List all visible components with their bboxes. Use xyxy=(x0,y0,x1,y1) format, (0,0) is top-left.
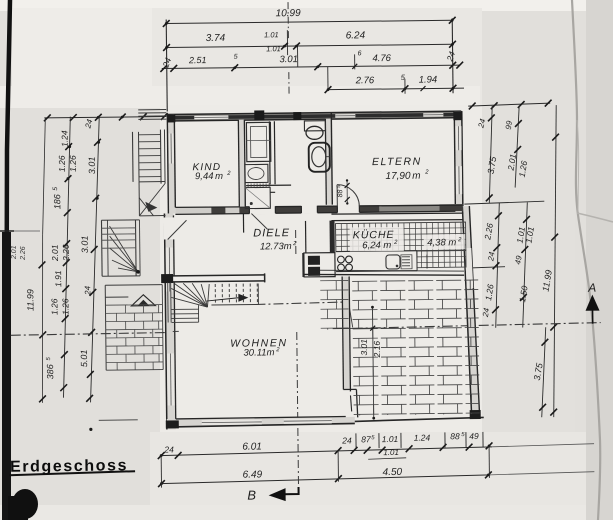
svg-text:30.11m: 30.11m xyxy=(243,347,274,358)
svg-text:5: 5 xyxy=(234,54,238,61)
svg-text:87: 87 xyxy=(361,434,371,444)
svg-text:186: 186 xyxy=(52,194,62,209)
svg-text:6: 6 xyxy=(358,50,362,57)
svg-text:2.26: 2.26 xyxy=(61,244,71,262)
svg-text:6.24: 6.24 xyxy=(346,30,366,41)
svg-text:4.76: 4.76 xyxy=(372,53,391,64)
svg-text:2.51: 2.51 xyxy=(188,55,207,65)
svg-text:6.49: 6.49 xyxy=(243,469,263,480)
svg-text:2: 2 xyxy=(275,347,280,353)
svg-text:B: B xyxy=(247,488,256,503)
svg-text:24: 24 xyxy=(83,285,92,296)
svg-text:49: 49 xyxy=(469,431,479,441)
svg-text:3.01: 3.01 xyxy=(279,54,298,65)
svg-text:2.01: 2.01 xyxy=(11,245,18,260)
svg-text:1.01: 1.01 xyxy=(266,44,281,53)
svg-text:1.26: 1.26 xyxy=(68,155,78,172)
svg-text:386: 386 xyxy=(45,364,55,379)
svg-text:24: 24 xyxy=(163,444,174,454)
svg-text:1.94: 1.94 xyxy=(419,74,438,85)
svg-text:1.26: 1.26 xyxy=(57,155,67,172)
svg-text:1.26: 1.26 xyxy=(60,298,70,315)
svg-text:2: 2 xyxy=(393,240,398,246)
svg-text:DIELE: DIELE xyxy=(253,227,290,239)
svg-text:4,38 m: 4,38 m xyxy=(427,237,456,248)
svg-text:ELTERN: ELTERN xyxy=(372,156,422,169)
svg-text:88: 88 xyxy=(337,189,344,197)
svg-text:9,44 m: 9,44 m xyxy=(195,171,223,182)
svg-text:12.73m: 12.73m xyxy=(260,241,292,252)
svg-text:11.99: 11.99 xyxy=(25,289,35,311)
svg-text:1.01: 1.01 xyxy=(383,448,399,457)
svg-text:17,90 m: 17,90 m xyxy=(385,171,420,182)
svg-text:24: 24 xyxy=(486,251,497,263)
svg-text:A: A xyxy=(587,281,596,295)
svg-text:3.01: 3.01 xyxy=(359,339,369,356)
svg-text:1.91: 1.91 xyxy=(53,270,63,287)
svg-text:2.16: 2.16 xyxy=(372,341,382,359)
svg-text:1.24: 1.24 xyxy=(59,130,69,147)
svg-text:2.01: 2.01 xyxy=(50,244,60,262)
svg-text:2: 2 xyxy=(424,170,429,176)
svg-text:3.01: 3.01 xyxy=(80,236,90,254)
svg-text:1.24: 1.24 xyxy=(414,433,431,443)
svg-text:2: 2 xyxy=(226,171,231,177)
svg-text:24: 24 xyxy=(341,435,352,445)
svg-text:5: 5 xyxy=(336,185,342,188)
svg-text:5.01: 5.01 xyxy=(79,350,89,368)
svg-text:2: 2 xyxy=(292,241,297,247)
svg-text:4.50: 4.50 xyxy=(383,467,403,478)
svg-text:24: 24 xyxy=(481,307,492,319)
svg-text:1.01: 1.01 xyxy=(264,30,279,39)
svg-text:2.26: 2.26 xyxy=(20,246,27,261)
svg-text:6,24 m: 6,24 m xyxy=(362,240,391,251)
svg-text:1.26: 1.26 xyxy=(49,298,59,315)
svg-text:6.01: 6.01 xyxy=(242,441,262,452)
svg-text:3.74: 3.74 xyxy=(206,33,226,44)
svg-text:3.01: 3.01 xyxy=(87,157,97,175)
svg-text:2: 2 xyxy=(457,237,462,243)
svg-text:88: 88 xyxy=(450,431,460,441)
svg-text:2.76: 2.76 xyxy=(355,75,375,86)
svg-text:5: 5 xyxy=(52,187,59,191)
svg-text:1.01: 1.01 xyxy=(382,434,399,444)
